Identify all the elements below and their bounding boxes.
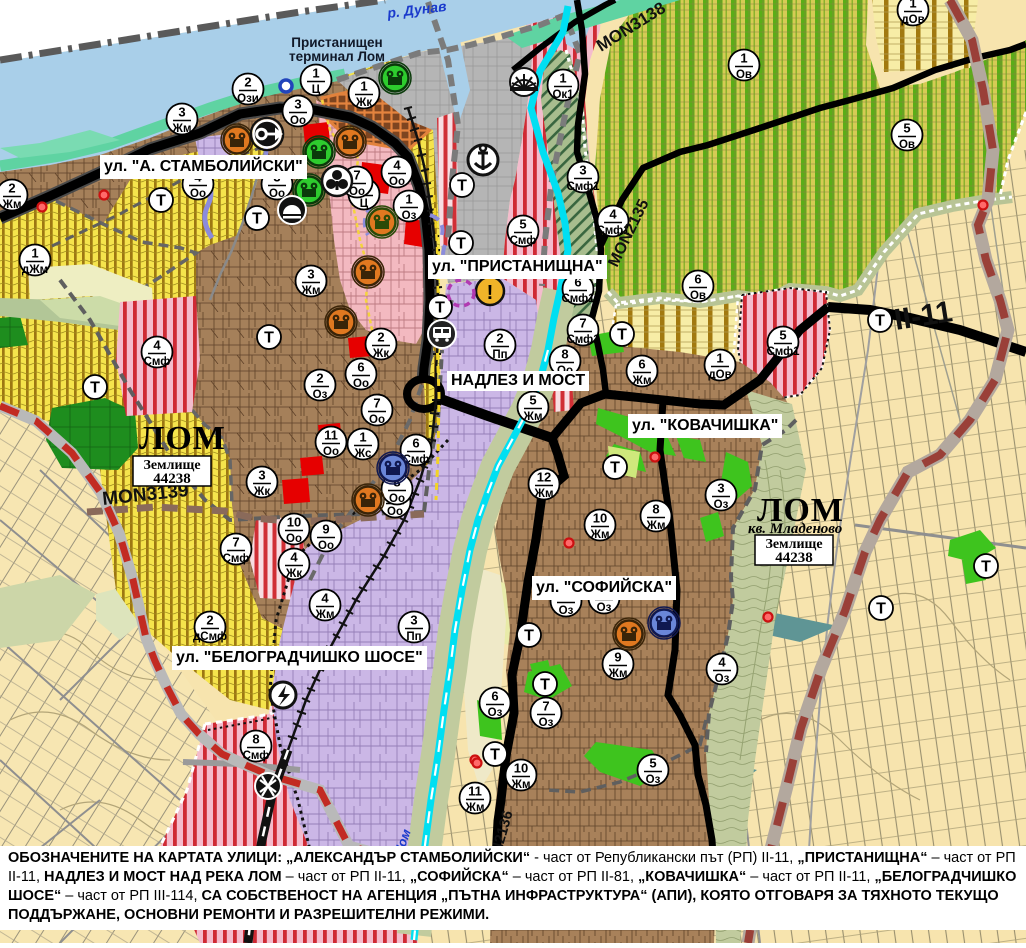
svg-text:Оо: Оо [389, 493, 405, 505]
svg-text:4: 4 [290, 550, 298, 565]
svg-text:Жм: Жм [534, 488, 554, 500]
svg-text:Оо: Оо [389, 176, 405, 188]
svg-text:дСмф: дСмф [193, 631, 227, 643]
svg-text:5: 5 [779, 328, 786, 343]
svg-text:Ов: Ов [736, 69, 752, 81]
svg-text:2: 2 [8, 181, 15, 196]
svg-text:4: 4 [609, 207, 617, 222]
svg-text:T: T [90, 380, 100, 397]
svg-text:Смф1: Смф1 [766, 346, 800, 358]
svg-text:7: 7 [542, 699, 549, 714]
svg-text:1: 1 [359, 430, 366, 445]
svg-text:1: 1 [405, 192, 412, 207]
svg-text:3: 3 [307, 267, 314, 282]
svg-text:7: 7 [232, 535, 239, 550]
svg-text:Оо: Оо [369, 414, 385, 426]
svg-text:1: 1 [909, 0, 916, 11]
svg-text:Оз: Оз [313, 389, 328, 401]
svg-text:1: 1 [740, 51, 747, 66]
svg-text:Оз: Оз [559, 605, 574, 617]
svg-text:5: 5 [903, 121, 910, 136]
svg-text:4: 4 [393, 158, 401, 173]
svg-text:Смф: Смф [243, 750, 270, 762]
svg-text:1: 1 [31, 246, 38, 261]
svg-text:Ози: Ози [237, 93, 259, 105]
svg-text:4: 4 [321, 591, 329, 606]
svg-text:T: T [876, 601, 886, 618]
svg-text:Оз: Оз [402, 210, 417, 222]
svg-text:Жс: Жс [354, 448, 372, 460]
svg-text:1: 1 [312, 66, 319, 81]
svg-text:5: 5 [519, 217, 526, 232]
svg-text:6: 6 [638, 357, 645, 372]
svg-text:T: T [435, 300, 445, 317]
svg-text:Жм: Жм [523, 411, 543, 423]
svg-text:5: 5 [529, 393, 536, 408]
svg-text:Жм: Жм [465, 802, 485, 814]
svg-text:Жк: Жк [285, 568, 302, 580]
svg-text:10: 10 [287, 515, 301, 530]
svg-text:5: 5 [649, 756, 656, 771]
svg-text:Жм: Жм [315, 609, 335, 621]
svg-text:T: T [490, 747, 500, 764]
svg-text:Жм: Жм [632, 375, 652, 387]
svg-text:Оз: Оз [714, 499, 729, 511]
svg-text:T: T [456, 236, 466, 253]
svg-text:3: 3 [717, 481, 724, 496]
svg-text:Оо: Оо [353, 378, 369, 390]
svg-text:12: 12 [537, 470, 551, 485]
svg-text:T: T [156, 193, 166, 210]
svg-text:Жм: Жм [590, 529, 610, 541]
svg-text:Жк: Жк [372, 348, 389, 360]
svg-text:1: 1 [559, 71, 566, 86]
svg-text:1: 1 [360, 79, 367, 94]
svg-text:Жм: Жм [172, 123, 192, 135]
svg-text:Пристанищен: Пристанищен [291, 35, 382, 50]
svg-text:Оо: Оо [269, 188, 285, 200]
svg-text:Смф1: Смф1 [561, 293, 595, 305]
svg-text:дЖм: дЖм [22, 264, 48, 276]
svg-text:T: T [252, 211, 262, 228]
svg-text:Ц: Ц [360, 198, 369, 210]
svg-text:дОв: дОв [708, 369, 731, 381]
svg-text:Оо: Оо [323, 446, 339, 458]
svg-text:Оз: Оз [539, 717, 554, 729]
svg-text:Жм: Жм [511, 779, 531, 791]
svg-text:10: 10 [593, 511, 607, 526]
svg-text:ЛОМ: ЛОМ [139, 420, 226, 457]
svg-text:44238: 44238 [153, 471, 191, 487]
svg-text:6: 6 [491, 689, 498, 704]
svg-text:3: 3 [410, 613, 417, 628]
svg-text:Оо: Оо [318, 540, 334, 552]
svg-text:Оз: Оз [715, 673, 730, 685]
svg-text:Смф1: Смф1 [566, 334, 600, 346]
svg-text:11: 11 [324, 428, 338, 443]
svg-text:Смф: Смф [144, 356, 171, 368]
svg-text:Жк: Жк [355, 97, 372, 109]
svg-text:8: 8 [652, 502, 659, 517]
svg-text:7: 7 [579, 316, 586, 331]
svg-text:7: 7 [353, 168, 360, 183]
svg-text:Оо: Оо [387, 506, 403, 518]
svg-text:Оз: Оз [488, 707, 503, 719]
svg-text:Оо: Оо [286, 533, 302, 545]
svg-text:Ок1: Ок1 [552, 89, 574, 101]
svg-text:T: T [540, 677, 550, 694]
svg-text:9: 9 [322, 522, 329, 537]
svg-text:Ц: Ц [312, 84, 321, 96]
svg-text:2: 2 [316, 371, 323, 386]
svg-text:T: T [875, 313, 885, 330]
svg-text:10: 10 [514, 761, 528, 776]
svg-text:2: 2 [244, 75, 251, 90]
svg-text:T: T [457, 178, 467, 195]
svg-text:6: 6 [412, 436, 419, 451]
svg-text:4: 4 [718, 655, 726, 670]
svg-text:3: 3 [579, 163, 586, 178]
svg-text:T: T [524, 628, 534, 645]
svg-text:4: 4 [153, 338, 161, 353]
svg-text:T: T [617, 327, 627, 344]
svg-text:7: 7 [373, 396, 380, 411]
svg-text:T: T [981, 559, 991, 576]
svg-text:Пп: Пп [492, 349, 507, 361]
svg-text:Смф1: Смф1 [566, 181, 600, 193]
svg-text:1: 1 [716, 351, 723, 366]
svg-text:3: 3 [294, 97, 301, 112]
svg-text:Оз: Оз [646, 774, 661, 786]
svg-text:Оо: Оо [190, 188, 206, 200]
svg-text:6: 6 [694, 272, 701, 287]
svg-text:дОв: дОв [901, 14, 924, 26]
svg-text:Смф: Смф [510, 235, 537, 247]
svg-text:11: 11 [468, 784, 482, 799]
svg-text:9: 9 [614, 650, 621, 665]
svg-text:Жм: Жм [608, 668, 628, 680]
svg-text:3: 3 [258, 468, 265, 483]
svg-text:терминал Лом: терминал Лом [289, 49, 385, 64]
svg-text:T: T [264, 330, 274, 347]
svg-text:Пп: Пп [406, 631, 421, 643]
svg-text:Ов: Ов [899, 139, 915, 151]
svg-text:Ов: Ов [690, 290, 706, 302]
svg-text:Оо: Оо [290, 115, 306, 127]
svg-text:Жм: Жм [2, 199, 22, 211]
svg-text:T: T [610, 460, 620, 477]
svg-text:Оз: Оз [597, 602, 612, 614]
svg-text:3: 3 [178, 105, 185, 120]
svg-text:8: 8 [252, 732, 259, 747]
svg-text:!: ! [487, 282, 494, 304]
svg-text:2: 2 [377, 330, 384, 345]
svg-text:8: 8 [561, 347, 568, 362]
svg-text:Жк: Жк [253, 486, 270, 498]
svg-text:2: 2 [206, 613, 213, 628]
svg-text:Жм: Жм [301, 285, 321, 297]
svg-text:2: 2 [496, 331, 503, 346]
svg-text:44238: 44238 [775, 550, 813, 566]
svg-text:Смф: Смф [223, 553, 250, 565]
svg-text:Жм: Жм [646, 520, 666, 532]
svg-text:6: 6 [357, 360, 364, 375]
